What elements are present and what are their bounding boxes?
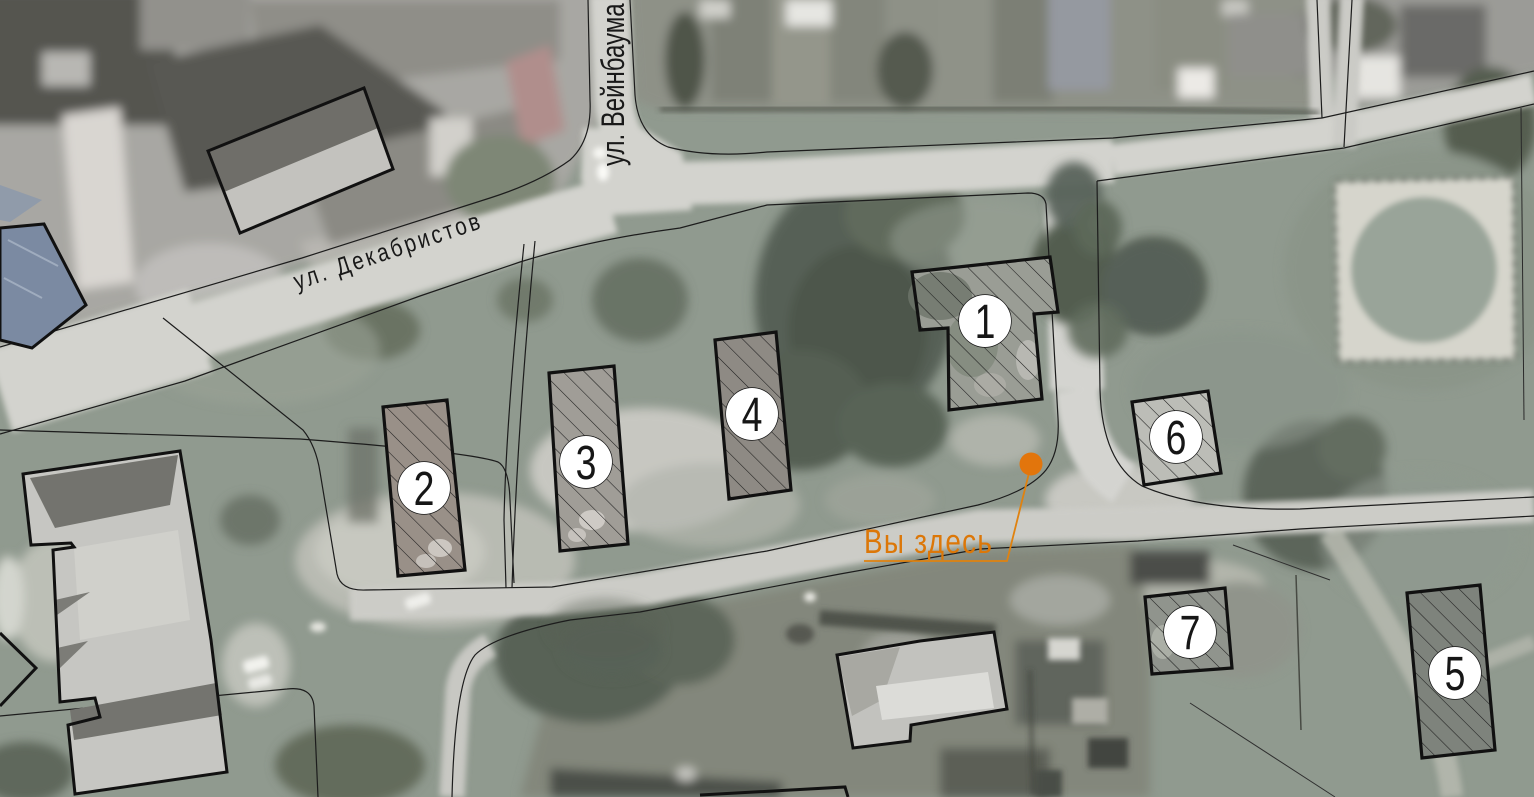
svg-text:5: 5 [1445, 648, 1466, 702]
svg-text:7: 7 [1180, 607, 1201, 661]
svg-text:Вы здесь: Вы здесь [864, 522, 993, 560]
svg-text:2: 2 [414, 463, 435, 517]
svg-text:1: 1 [975, 296, 996, 350]
svg-text:6: 6 [1166, 412, 1187, 466]
svg-text:3: 3 [576, 437, 597, 491]
svg-text:4: 4 [742, 389, 763, 443]
svg-text:ул. Вейнбаума: ул. Вейнбаума [595, 3, 631, 166]
